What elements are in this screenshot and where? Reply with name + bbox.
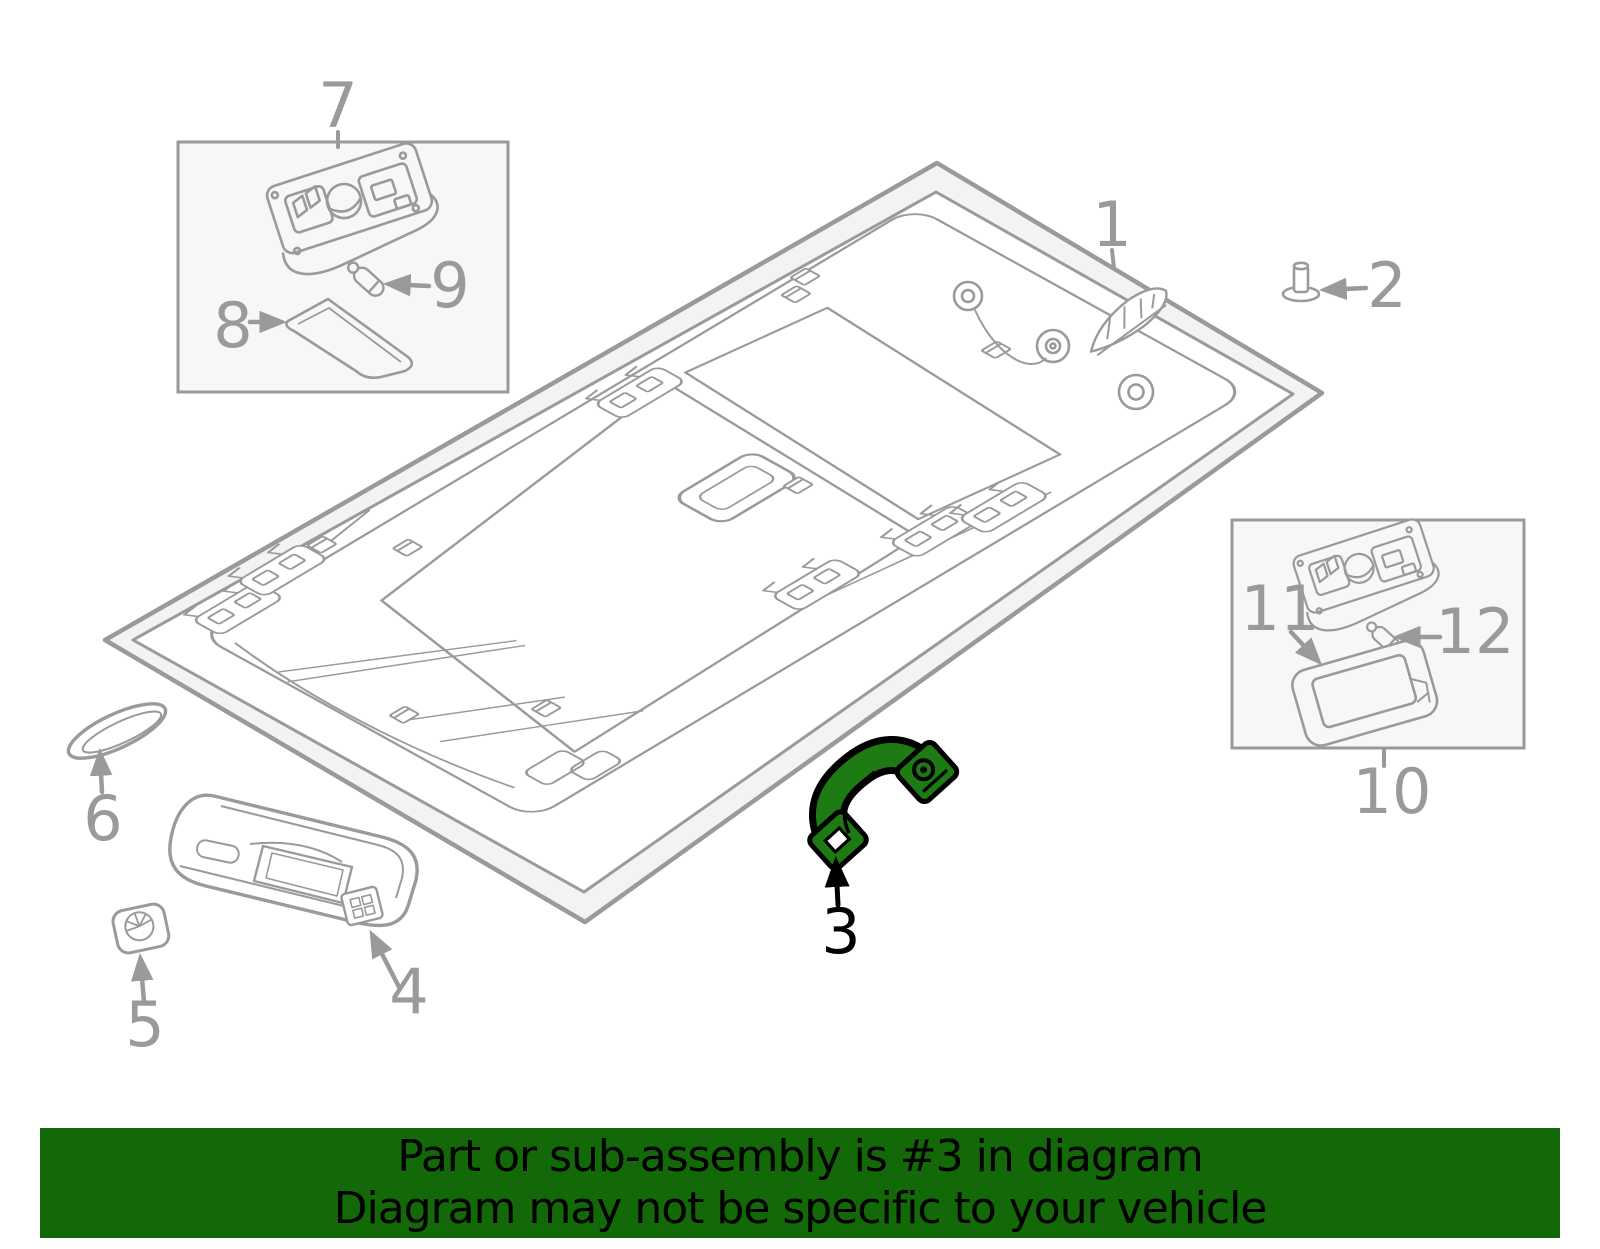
banner-line-1: Part or sub-assembly is #3 in diagram <box>397 1131 1202 1183</box>
callout-3: 3 <box>821 884 860 968</box>
callout-label-11: 11 <box>1241 572 1320 645</box>
callout-2: 2 <box>1344 249 1407 322</box>
callout-label-2: 2 <box>1367 249 1406 322</box>
callout-label-4: 4 <box>389 955 428 1028</box>
callout-10: 10 <box>1353 750 1432 828</box>
visor-cover-drawing <box>62 693 172 769</box>
callout-label-3: 3 <box>821 895 860 968</box>
callout-label-5: 5 <box>125 988 164 1061</box>
callout-6: 6 <box>83 773 122 855</box>
callout-1: 1 <box>1092 188 1131 268</box>
visor-clip-drawing <box>111 902 171 955</box>
callout-label-1: 1 <box>1092 188 1131 261</box>
callout-5: 5 <box>125 978 164 1061</box>
highlight-banner: Part or sub-assembly is #3 in diagram Di… <box>40 1128 1560 1238</box>
callout-label-10: 10 <box>1353 755 1432 828</box>
sun-visor-drawing <box>170 795 417 926</box>
callout-label-6: 6 <box>83 782 122 855</box>
retainer-clip-drawing <box>1283 263 1319 301</box>
parts-diagram: 1 2 3 4 5 6 7 8 <box>0 0 1600 1128</box>
callout-label-9: 9 <box>430 249 469 322</box>
callout-label-8: 8 <box>213 289 252 362</box>
highlighted-part-grab-handle <box>807 740 960 871</box>
callout-11: 11 <box>1241 572 1320 647</box>
callout-4: 4 <box>381 952 429 1028</box>
visor-pivot-bracket <box>341 886 384 926</box>
banner-line-2: Diagram may not be specific to your vehi… <box>334 1183 1267 1235</box>
callout-label-12: 12 <box>1436 595 1515 668</box>
callout-7: 7 <box>318 69 357 147</box>
callout-label-7: 7 <box>318 69 357 142</box>
parts-diagram-page: 1 2 3 4 5 6 7 8 <box>0 0 1600 1249</box>
